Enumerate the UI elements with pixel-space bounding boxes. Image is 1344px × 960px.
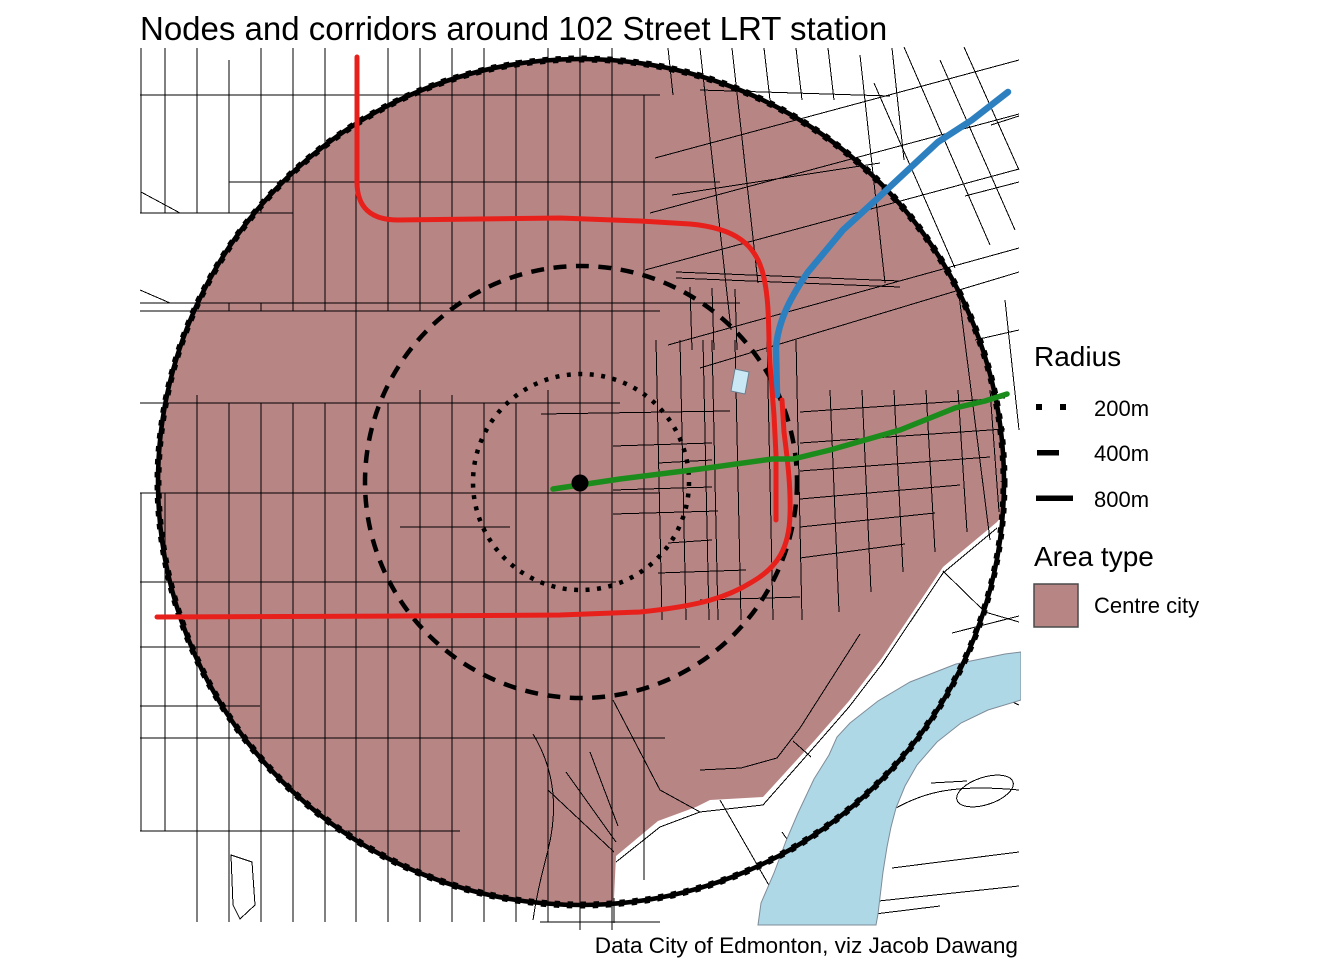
svg-text:Radius: Radius xyxy=(1034,341,1121,372)
svg-text:Centre city: Centre city xyxy=(1094,593,1199,618)
svg-text:Nodes and corridors around 102: Nodes and corridors around 102 Street LR… xyxy=(140,10,887,47)
svg-text:800m: 800m xyxy=(1094,487,1149,512)
svg-text:Data City of Edmonton, viz Jac: Data City of Edmonton, viz Jacob Dawang xyxy=(595,933,1018,958)
svg-text:400m: 400m xyxy=(1094,441,1149,466)
svg-text:200m: 200m xyxy=(1094,396,1149,421)
svg-text:Area type: Area type xyxy=(1034,541,1154,572)
